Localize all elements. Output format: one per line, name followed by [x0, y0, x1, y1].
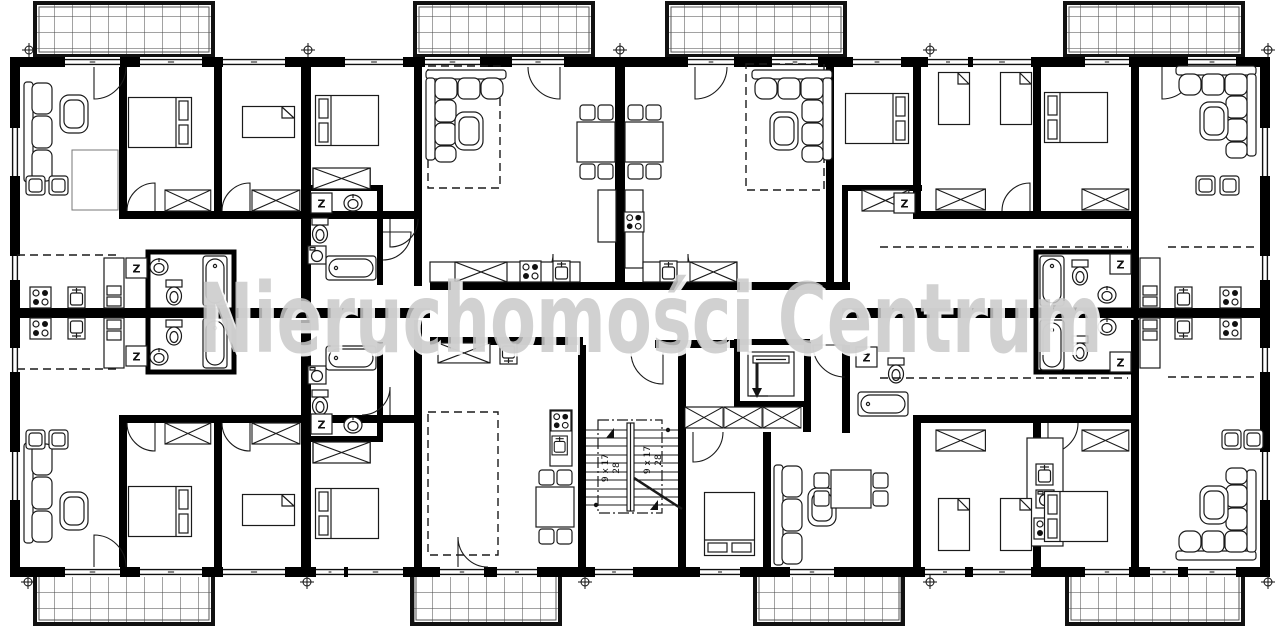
balcony [35, 571, 213, 624]
window-icon [595, 567, 633, 577]
single-bed-icon [1001, 499, 1032, 551]
door-arc [362, 387, 390, 415]
bathtub-icon [858, 392, 908, 416]
kitchen-cabinet [598, 190, 616, 242]
window-icon [1085, 57, 1129, 67]
floor-plan-page: 9 x 17 28 9 x 17 28 [0, 0, 1280, 627]
stove-icon [1220, 287, 1241, 308]
washbasin-icon [150, 348, 168, 365]
window-icon [10, 452, 20, 500]
window-icon [440, 567, 484, 577]
single-bed-icon [243, 107, 295, 138]
side-table-icon [1222, 430, 1241, 449]
window-icon [497, 567, 537, 577]
window-icon [10, 256, 20, 280]
side-table-icon [1220, 176, 1239, 195]
utility-z-box: Z [1110, 254, 1131, 274]
wardrobe-icon [252, 190, 300, 211]
wardrobe-icon [763, 407, 801, 428]
door-arc [127, 183, 155, 211]
window-icon [140, 57, 202, 67]
utility-z-label: Z [901, 198, 909, 211]
stove-icon [624, 212, 644, 232]
kitchen-sink-icon [1036, 464, 1053, 485]
window-icon [1188, 567, 1236, 577]
window-icon [688, 57, 734, 67]
balcony [667, 3, 845, 56]
survey-marker-icon [301, 43, 315, 57]
floor-plan: 9 x 17 28 9 x 17 28 [0, 0, 1280, 627]
double-bed-icon [846, 94, 909, 144]
table-icon [72, 150, 118, 210]
window-icon [512, 57, 564, 67]
staircase: 9 x 17 28 9 x 17 28 [586, 420, 682, 513]
washing-machine-icon [308, 246, 326, 264]
window-icon [345, 57, 403, 67]
armchair-icon [455, 112, 483, 150]
survey-marker-icon [1261, 43, 1275, 57]
wardrobe-icon [1082, 189, 1129, 210]
stair-tread-label: 28 [654, 454, 664, 466]
door-arc [695, 67, 727, 99]
side-table-icon [1196, 176, 1215, 195]
window-icon [790, 567, 834, 577]
dining-table-icon [625, 105, 663, 179]
window-icon [10, 128, 20, 176]
window-icon [1260, 256, 1270, 280]
wardrobe-icon [724, 407, 762, 428]
side-table-icon [49, 430, 68, 449]
balcony [412, 571, 560, 624]
side-table-icon [26, 176, 45, 195]
utility-z-label: Z [318, 198, 326, 211]
window-icon [140, 567, 202, 577]
double-bed-icon [129, 487, 192, 537]
dining-table-icon [536, 470, 574, 544]
stove-icon [30, 318, 51, 339]
utility-z-box: Z [311, 414, 332, 434]
wardrobe-icon [685, 407, 723, 428]
kitchen-sink-icon [68, 287, 85, 308]
window-icon [348, 567, 403, 577]
door-arc [127, 423, 155, 451]
survey-marker-icon [578, 575, 592, 589]
single-bed-icon [939, 73, 970, 125]
stove-icon [30, 287, 51, 308]
window-icon [853, 57, 901, 67]
utility-z-box: Z [126, 258, 147, 278]
single-bed-icon [939, 499, 970, 551]
survey-marker-icon [923, 43, 937, 57]
side-table-icon [1244, 430, 1263, 449]
window-icon [973, 57, 1031, 67]
wardrobe-icon [936, 430, 985, 451]
stove-icon [551, 411, 571, 431]
utility-z-label: Z [133, 263, 141, 276]
kitchen-sink-icon [1175, 318, 1192, 339]
door-arc [458, 537, 488, 567]
window-icon [1260, 128, 1270, 176]
window-icon [65, 57, 120, 67]
balcony [1067, 571, 1243, 624]
watermark: Nieruchomości Centrum Nieruchomości Cent… [198, 263, 1106, 378]
armchair-icon [1200, 486, 1228, 524]
armchair-icon [60, 95, 88, 133]
dining-table-icon [577, 105, 615, 179]
survey-marker-icon [613, 43, 627, 57]
survey-marker-icon [21, 575, 35, 589]
utility-z-box: Z [1110, 352, 1131, 372]
door-arc [693, 432, 723, 462]
door-arc [390, 219, 418, 247]
sofa-icon [774, 465, 802, 565]
wardrobe-icon [165, 423, 211, 444]
utility-z-label: Z [318, 419, 326, 432]
window-icon [316, 567, 344, 577]
door-arc [222, 183, 250, 211]
window-icon [1150, 567, 1178, 577]
single-bed-icon [243, 495, 295, 526]
window-icon [925, 567, 965, 577]
double-bed-icon [316, 489, 379, 539]
utility-z-box: Z [311, 193, 332, 213]
carpet-outline [428, 412, 498, 555]
stair-rise-label: 9 x 17 [643, 446, 653, 474]
survey-marker-icon [1261, 575, 1275, 589]
toilet-icon [166, 280, 182, 305]
door-arc [1002, 183, 1030, 211]
double-bed-icon [1045, 93, 1108, 143]
sofa-icon [24, 82, 52, 182]
window-icon [223, 567, 285, 577]
kitchen-sink-icon [1175, 287, 1192, 308]
single-bed-icon [1001, 73, 1032, 125]
door-arc [528, 67, 560, 99]
balcony [415, 3, 593, 56]
utility-z-box: Z [126, 346, 147, 366]
toilet-icon [312, 218, 328, 243]
washbasin-icon [150, 258, 168, 275]
survey-marker-icon [300, 575, 314, 589]
wardrobe-icon [936, 189, 985, 210]
washbasin-icon [344, 194, 362, 211]
sofa-icon [24, 443, 52, 543]
double-bed-icon [129, 98, 192, 148]
wardrobe-icon [165, 190, 211, 211]
balcony [755, 571, 903, 624]
kitchen-sink-icon [552, 436, 567, 455]
utility-z-label: Z [1117, 259, 1125, 272]
stair-tread-label: 28 [612, 462, 622, 474]
wardrobe-icon [313, 442, 370, 463]
window-icon [772, 57, 818, 67]
utility-z-box: Z [894, 193, 915, 213]
toilet-icon [312, 390, 328, 415]
window-icon [1085, 567, 1129, 577]
balcony [1065, 3, 1243, 56]
double-bed-icon [1045, 492, 1108, 542]
side-table-icon [26, 430, 45, 449]
utility-z-label: Z [133, 351, 141, 364]
utility-z-label: Z [1117, 357, 1125, 370]
stove-icon [1220, 318, 1241, 339]
armchair-icon [1200, 102, 1228, 140]
toilet-icon [166, 320, 182, 345]
window-icon [65, 567, 120, 577]
survey-marker-icon [923, 575, 937, 589]
armchair-icon [60, 492, 88, 530]
window-icon [1260, 452, 1270, 500]
window-icon [700, 567, 740, 577]
double-bed-icon [316, 96, 379, 146]
side-table-icon [49, 176, 68, 195]
door-arc [222, 423, 250, 451]
double-bed-icon [705, 493, 755, 556]
washbasin-icon [344, 416, 362, 433]
balcony [35, 3, 213, 56]
wardrobe-icon [252, 423, 300, 444]
window-icon [1260, 348, 1270, 372]
armchair-icon [770, 112, 798, 150]
wardrobe-icon [313, 168, 370, 189]
wardrobe-icon [1082, 430, 1129, 451]
watermark-text: Nieruchomości Centrum [198, 263, 1103, 375]
window-icon [973, 567, 1031, 577]
window-icon [928, 57, 968, 67]
kitchen-sink-icon [68, 318, 85, 339]
furniture-top [24, 64, 1256, 211]
window-icon [223, 57, 285, 67]
stair-rise-label: 9 x 17 [601, 454, 611, 482]
